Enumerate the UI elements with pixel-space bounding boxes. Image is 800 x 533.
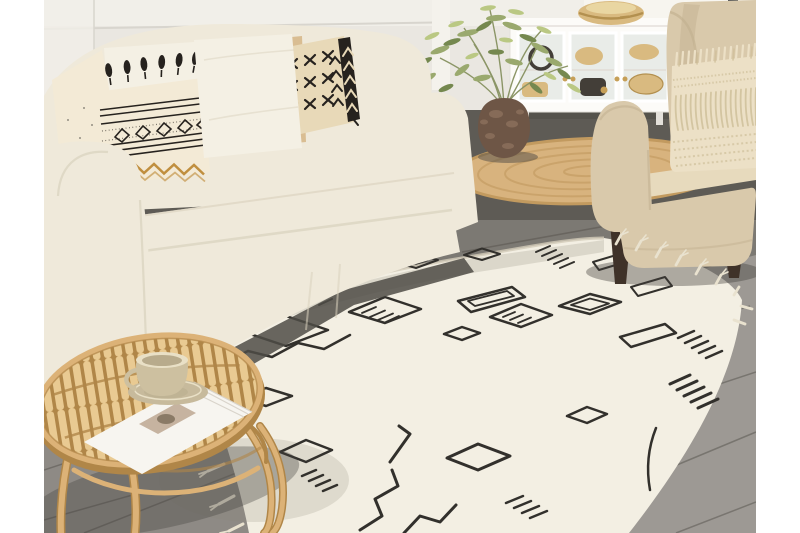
sideboard-leg — [656, 112, 663, 125]
cup-interior — [142, 355, 182, 366]
basket-lower — [629, 74, 663, 94]
living-room-photo — [44, 0, 756, 533]
plant-pot — [478, 98, 530, 158]
screenshot — [0, 0, 800, 533]
letterbox-left — [0, 0, 44, 533]
cover-photo-detail — [157, 414, 175, 424]
cushion-white — [194, 34, 302, 158]
basket-bowl — [578, 1, 644, 25]
scene-canvas — [44, 0, 756, 533]
basket-upper — [629, 44, 659, 60]
letterbox-right — [756, 0, 800, 533]
basket-dark — [580, 78, 606, 96]
armchair-arm — [591, 101, 652, 232]
gold-decor — [601, 87, 608, 94]
sideboard — [502, 1, 678, 125]
basket-lidded — [575, 47, 603, 65]
fringe-pillow — [670, 44, 756, 172]
